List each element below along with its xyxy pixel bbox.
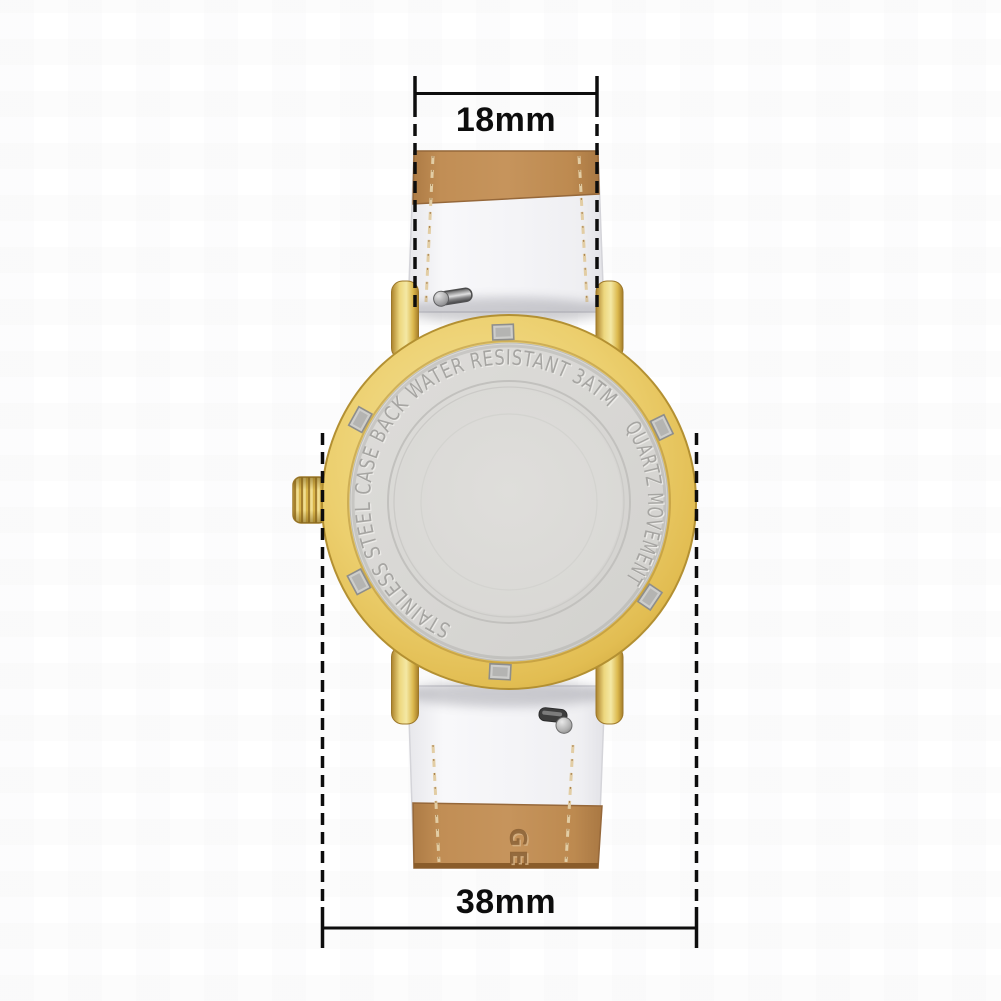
product-photo: GE GE STAINLESS STEEL CASE BACK WATER RE… bbox=[0, 0, 1001, 1001]
dimension-label-18mm: 18mm bbox=[456, 101, 556, 139]
watch-case: STAINLESS STEEL CASE BACK WATER RESISTAN… bbox=[322, 315, 696, 689]
top-strap-suede bbox=[413, 151, 599, 204]
case-back-center bbox=[396, 389, 622, 615]
case-notch-inner bbox=[492, 667, 507, 677]
bottom-strap: GE GE bbox=[408, 686, 605, 870]
strap-brand-emboss: GE bbox=[504, 828, 530, 869]
top-strap bbox=[408, 151, 604, 312]
case-notch-inner bbox=[495, 327, 510, 337]
watch-photo-svg: GE GE STAINLESS STEEL CASE BACK WATER RE… bbox=[0, 0, 1001, 1001]
dimension-label-38mm: 38mm bbox=[456, 883, 556, 921]
